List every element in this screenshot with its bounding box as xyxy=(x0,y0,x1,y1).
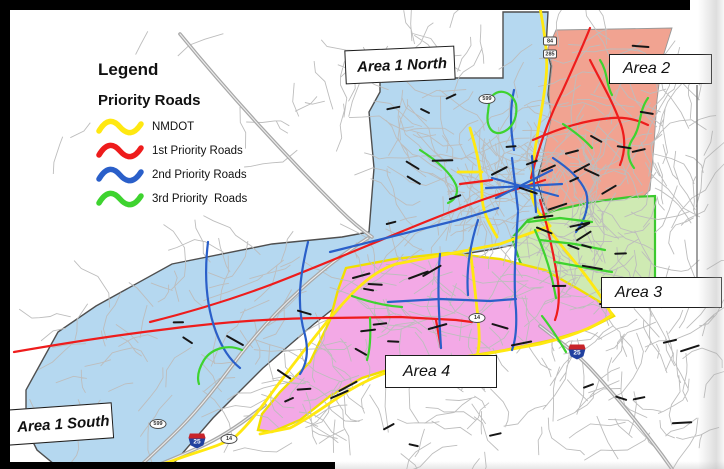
legend: Legend Priority Roads NMDOT 1st Priority… xyxy=(96,60,247,211)
route-14-marker: 14 xyxy=(469,313,486,323)
area-1-north-label: Area 1 North xyxy=(344,46,455,85)
nmdot-line-swatch-icon xyxy=(96,116,144,138)
legend-item-priority-2: 2nd Priority Roads xyxy=(96,163,247,187)
priority3-line-swatch-icon xyxy=(96,188,144,210)
priority1-line-swatch-icon xyxy=(96,140,144,162)
route-14-marker: 14 xyxy=(221,434,238,444)
legend-title: Legend xyxy=(98,60,247,80)
legend-item-label: 2nd Priority Roads xyxy=(152,169,247,181)
area-3-label: Area 3 xyxy=(601,277,722,308)
area-2-label: Area 2 xyxy=(609,54,712,84)
legend-item-nmdot: NMDOT xyxy=(96,115,247,139)
priority2-line-swatch-icon xyxy=(96,164,144,186)
route-599-marker: 599 xyxy=(479,94,496,104)
legend-item-priority-1: 1st Priority Roads xyxy=(96,139,247,163)
area-1-south-label: Area 1 South xyxy=(5,402,114,445)
priority-roads-map-figure: Legend Priority Roads NMDOT 1st Priority… xyxy=(0,0,724,469)
route-84-marker: 84 xyxy=(543,37,557,46)
legend-item-label: NMDOT xyxy=(152,121,194,133)
frame-left xyxy=(0,0,10,469)
legend-item-label: 3rd Priority Roads xyxy=(152,193,247,205)
legend-item-priority-3: 3rd Priority Roads xyxy=(96,187,247,211)
frame-top xyxy=(0,0,690,10)
legend-subtitle: Priority Roads xyxy=(98,92,247,109)
route-285-marker: 285 xyxy=(543,50,557,59)
frame-bottom xyxy=(0,462,335,469)
area-4-label: Area 4 xyxy=(385,355,497,388)
legend-item-label: 1st Priority Roads xyxy=(152,145,243,157)
route-599-marker: 599 xyxy=(150,419,167,429)
